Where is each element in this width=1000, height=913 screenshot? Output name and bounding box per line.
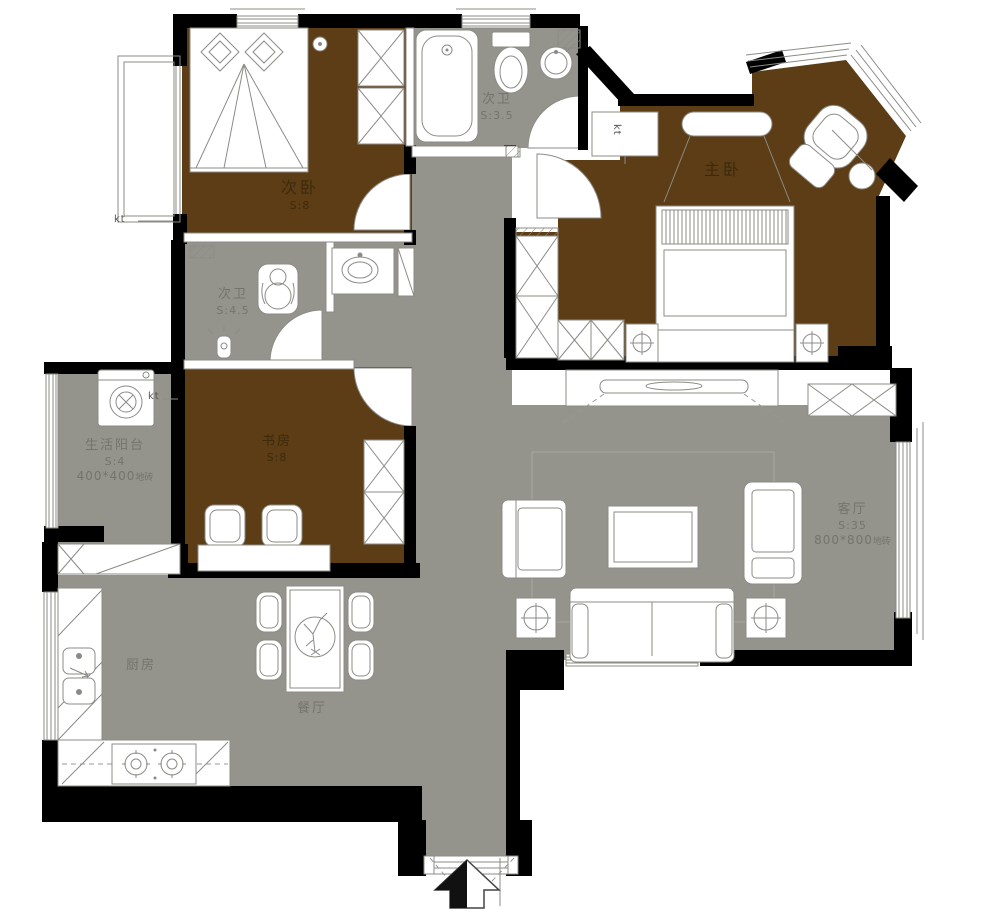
floor-plan-drawing [0,0,1000,913]
upper-cabinet [58,544,180,574]
desk-chair [205,505,245,547]
pedestal-basin [217,336,231,358]
cabinet [808,384,896,416]
sink [63,648,95,674]
lounge-chair [744,482,802,584]
desk-chair [262,505,302,547]
toilet [494,47,528,93]
floor-plan: 次卧 S:8 次卫 S:3.5 主卧 次卫 S:4.5 生活阳台 S:4 400… [0,0,1000,913]
bed-headboard [662,210,788,244]
entrance [424,856,518,908]
ac-niche [592,112,658,156]
vanity-stool [849,163,875,189]
armchair [502,500,566,578]
ac-label: kt [114,214,126,225]
desk [198,545,330,571]
dresser [682,112,772,136]
coffee-table [608,506,698,568]
balcony-furniture [98,370,154,426]
vanity-sink [342,257,378,283]
ac-label: kt [611,124,622,136]
toilet-tank [492,32,530,47]
ac-label: kt [148,391,160,402]
